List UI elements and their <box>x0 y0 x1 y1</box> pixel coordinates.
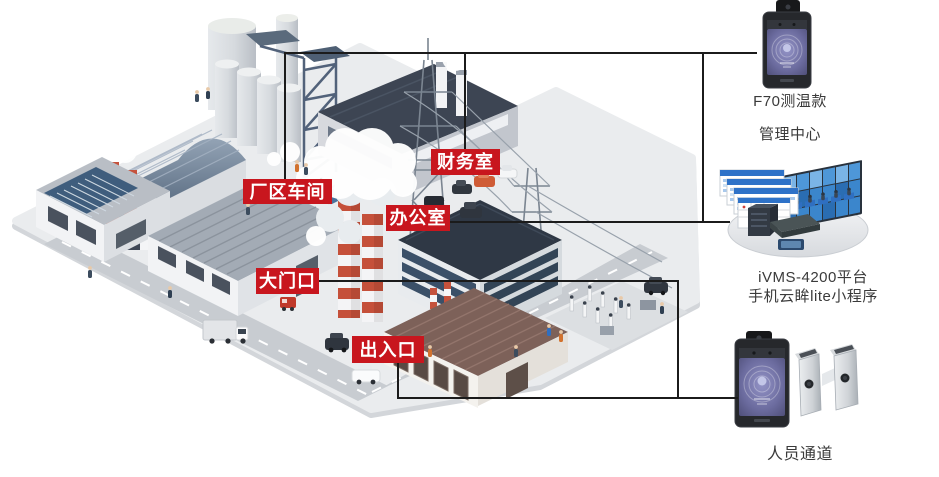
server-rack-icon <box>748 204 778 236</box>
area-label-main-gate: 大门口 <box>256 268 319 294</box>
turnstile-icon <box>795 348 835 416</box>
caption-management-center: 管理中心 <box>705 123 875 144</box>
solution-diagram: 厂区车间 财务室 办公室 大门口 出入口 F70测温款 管理中心 <box>0 0 939 477</box>
passage-terminal-turnstile-illustration <box>725 322 875 434</box>
caption-ivms-platform: iVMS-4200平台 <box>728 266 898 287</box>
face-terminal-passage-icon <box>735 331 789 427</box>
area-label-entrance-exit: 出入口 <box>352 336 424 363</box>
caption-cloud-miniapp: 手机云眸lite小程序 <box>728 285 898 306</box>
control-center-illustration <box>700 158 890 266</box>
area-label-office: 办公室 <box>386 205 450 231</box>
area-label-finance: 财务室 <box>431 149 500 175</box>
tablet-icon <box>778 239 804 250</box>
face-terminal-f70-illustration <box>750 0 830 92</box>
caption-personnel-passage: 人员通道 <box>715 440 885 464</box>
area-label-workshop: 厂区车间 <box>243 179 332 204</box>
caption-f70-model: F70测温款 <box>705 90 875 111</box>
